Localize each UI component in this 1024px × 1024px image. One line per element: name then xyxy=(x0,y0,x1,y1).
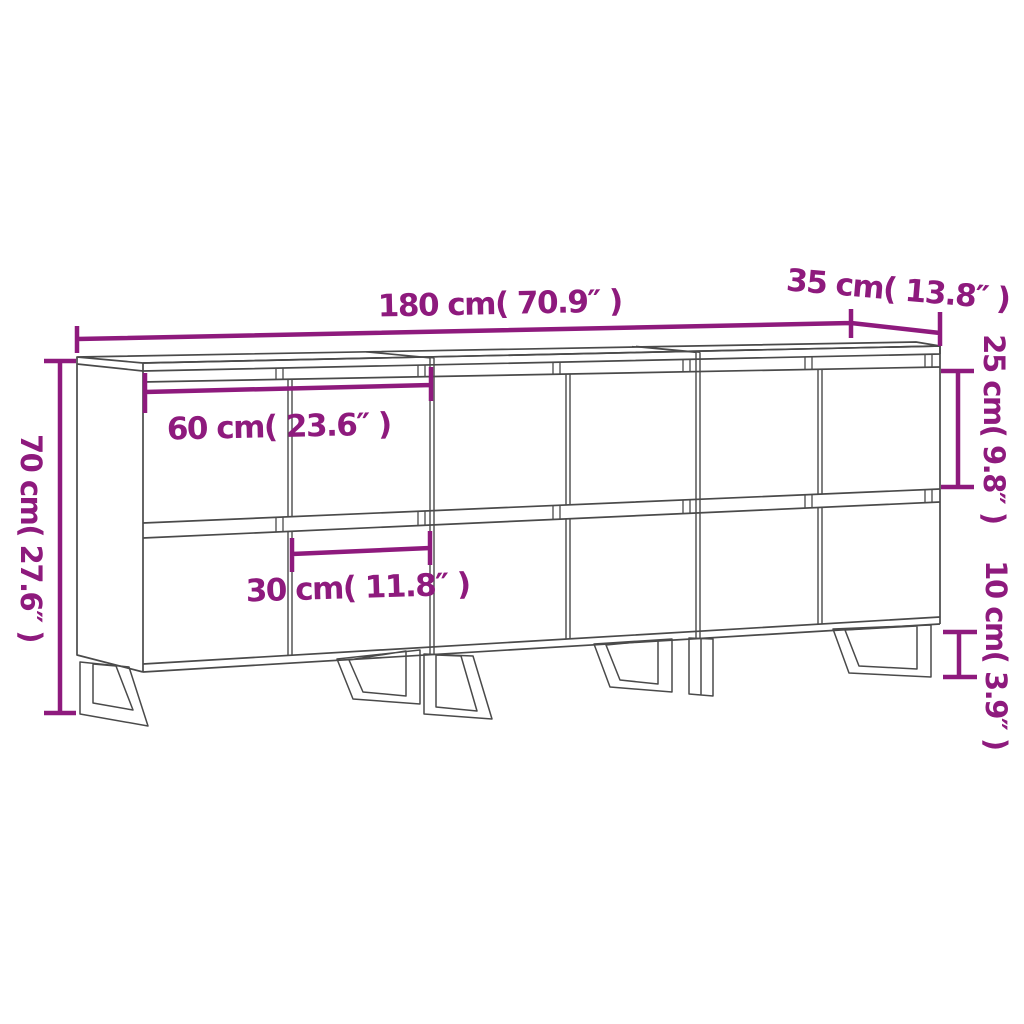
dim-unit-width-label: 60 cm( 23.6″ ) xyxy=(166,406,391,447)
dim-leg-height-label: 10 cm( 3.9″ ) xyxy=(979,560,1013,749)
product-dimension-diagram: 180 cm( 70.9″ ) 35 cm( 13.8″ ) 25 cm( 9.… xyxy=(0,0,1024,1024)
dim-door-width-label: 30 cm( 11.8″ ) xyxy=(245,566,470,609)
dim-total-height-label: 70 cm( 27.6″ ) xyxy=(14,434,48,642)
background xyxy=(0,0,1024,1024)
dim-upper-door-height-label: 25 cm( 9.8″ ) xyxy=(977,334,1011,523)
dim-total-width-label: 180 cm( 70.9″ ) xyxy=(377,283,622,324)
diagram-canvas: 180 cm( 70.9″ ) 35 cm( 13.8″ ) 25 cm( 9.… xyxy=(0,0,1024,1024)
